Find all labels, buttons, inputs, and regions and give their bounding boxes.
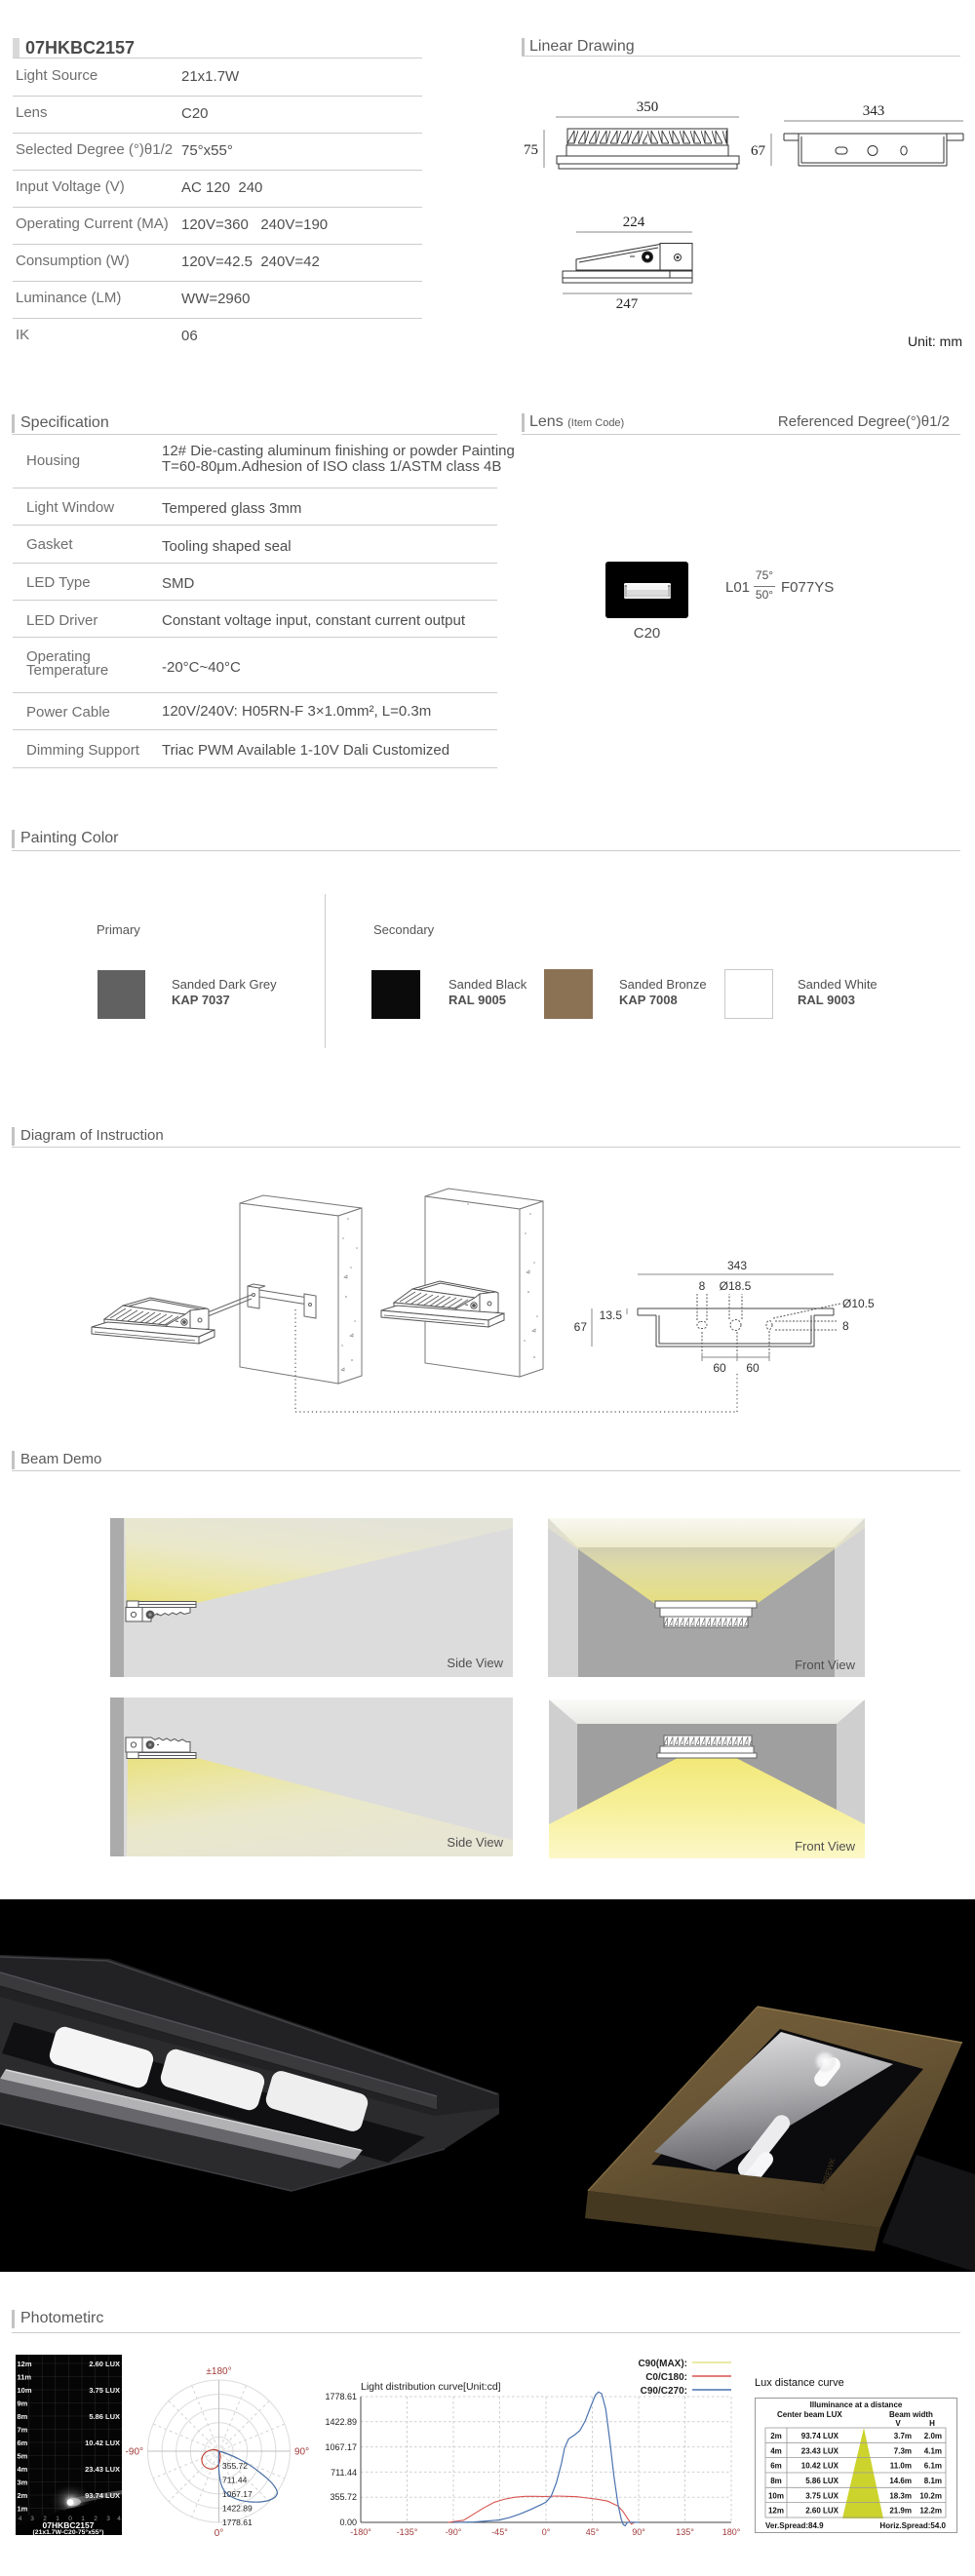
svg-text:C90/C270:: C90/C270: — [641, 2386, 687, 2397]
svg-text:180°: 180° — [722, 2527, 741, 2537]
svg-text:Side View: Side View — [447, 1835, 503, 1850]
svg-text:10.42 LUX: 10.42 LUX — [801, 2462, 839, 2471]
svg-text:Illuminance at a distance: Illuminance at a distance — [810, 2400, 903, 2409]
svg-text:224: 224 — [623, 215, 645, 230]
svg-text:V: V — [895, 2419, 901, 2428]
svg-text:1m: 1m — [18, 2505, 28, 2514]
svg-text:60: 60 — [713, 1361, 726, 1375]
svg-text:1422.89: 1422.89 — [325, 2417, 357, 2427]
svg-text:711.44: 711.44 — [222, 2476, 248, 2485]
svg-text:Ø18.5: Ø18.5 — [720, 1279, 752, 1293]
svg-text:13.5: 13.5 — [600, 1308, 623, 1322]
svg-text:355.72: 355.72 — [330, 2492, 357, 2502]
svg-text:247: 247 — [616, 296, 639, 312]
svg-text:3: 3 — [30, 2516, 34, 2522]
svg-text:10.2m: 10.2m — [919, 2491, 942, 2500]
svg-text:Front View: Front View — [795, 1839, 856, 1854]
svg-text:8: 8 — [699, 1279, 706, 1293]
svg-text:Ø10.5: Ø10.5 — [842, 1297, 875, 1310]
svg-text:11m: 11m — [18, 2373, 32, 2382]
svg-text:75: 75 — [524, 142, 538, 158]
svg-text:2: 2 — [94, 2516, 97, 2522]
svg-text:8: 8 — [842, 1319, 849, 1333]
svg-text:93.74 LUX: 93.74 LUX — [801, 2432, 839, 2440]
svg-text:14.6m: 14.6m — [889, 2477, 912, 2485]
svg-text:135°: 135° — [676, 2527, 694, 2537]
svg-text:4: 4 — [117, 2516, 121, 2522]
svg-text:2.60 LUX: 2.60 LUX — [89, 2360, 120, 2368]
svg-text:5.86 LUX: 5.86 LUX — [805, 2477, 838, 2485]
svg-text:-45°: -45° — [491, 2527, 508, 2537]
svg-text:67: 67 — [574, 1320, 588, 1334]
svg-text:12.2m: 12.2m — [919, 2507, 942, 2516]
svg-text:350: 350 — [637, 99, 659, 115]
svg-text:343: 343 — [727, 1259, 747, 1272]
svg-text:90°: 90° — [294, 2447, 309, 2458]
svg-text:1067.17: 1067.17 — [325, 2442, 357, 2452]
svg-text:12m: 12m — [768, 2507, 784, 2516]
svg-text:45°: 45° — [586, 2527, 600, 2537]
svg-text:11.0m: 11.0m — [890, 2462, 912, 2471]
svg-text:2m: 2m — [770, 2432, 782, 2440]
svg-text:12m: 12m — [18, 2360, 32, 2368]
svg-text:0.00: 0.00 — [339, 2517, 357, 2527]
svg-text:C0/C180:: C0/C180: — [645, 2372, 687, 2383]
svg-text:10.42 LUX: 10.42 LUX — [85, 2439, 120, 2447]
svg-text:21.9m: 21.9m — [889, 2507, 912, 2516]
svg-text:3.75 LUX: 3.75 LUX — [89, 2386, 120, 2395]
svg-text:Horiz.Spread:54.0: Horiz.Spread:54.0 — [879, 2521, 946, 2530]
svg-text:10m: 10m — [18, 2386, 32, 2395]
svg-text:H: H — [929, 2419, 935, 2428]
svg-text:-90°: -90° — [126, 2447, 143, 2458]
svg-text:4.1m: 4.1m — [924, 2446, 942, 2455]
svg-text:343: 343 — [863, 103, 885, 119]
svg-text:90°: 90° — [632, 2527, 645, 2537]
svg-text:6m: 6m — [18, 2439, 28, 2447]
svg-text:1778.61: 1778.61 — [325, 2392, 357, 2401]
svg-text:2.60 LUX: 2.60 LUX — [805, 2507, 838, 2516]
svg-text:Center beam LUX: Center beam LUX — [777, 2410, 842, 2419]
svg-text:6.1m: 6.1m — [924, 2462, 942, 2471]
svg-text:C90(MAX):: C90(MAX): — [638, 2359, 687, 2369]
svg-text:67: 67 — [751, 143, 766, 159]
svg-text:8m: 8m — [18, 2412, 28, 2421]
svg-text:8m: 8m — [770, 2477, 782, 2485]
svg-text:2.0m: 2.0m — [924, 2432, 942, 2440]
svg-text:Unit: mm: Unit: mm — [908, 333, 962, 349]
svg-text:23.43 LUX: 23.43 LUX — [801, 2446, 839, 2455]
svg-text:0°: 0° — [542, 2527, 551, 2537]
svg-text:10m: 10m — [768, 2491, 784, 2500]
svg-text:Side View: Side View — [447, 1656, 503, 1670]
svg-text:4m: 4m — [18, 2465, 28, 2474]
svg-text:93.74 LUX: 93.74 LUX — [85, 2491, 120, 2500]
svg-text:711.44: 711.44 — [331, 2468, 357, 2478]
svg-text:3m: 3m — [18, 2478, 28, 2487]
svg-text:4m: 4m — [770, 2446, 782, 2455]
svg-text:Light distribution curve[Unit:: Light distribution curve[Unit:cd] — [361, 2381, 501, 2393]
svg-text:-135°: -135° — [397, 2527, 418, 2537]
svg-text:60: 60 — [746, 1361, 760, 1375]
svg-text:3.75 LUX: 3.75 LUX — [805, 2491, 838, 2500]
svg-text:Front View: Front View — [795, 1658, 856, 1672]
svg-text:6m: 6m — [770, 2462, 782, 2471]
svg-text:3: 3 — [106, 2516, 110, 2522]
svg-text:4: 4 — [19, 2516, 22, 2522]
svg-text:18.3m: 18.3m — [889, 2491, 912, 2500]
svg-text:7m: 7m — [18, 2426, 28, 2435]
svg-text:7.3m: 7.3m — [894, 2446, 912, 2455]
svg-text:±180°: ±180° — [206, 2366, 231, 2377]
svg-text:23.43 LUX: 23.43 LUX — [85, 2465, 120, 2474]
svg-text:-180°: -180° — [350, 2527, 371, 2537]
svg-text:5m: 5m — [18, 2452, 28, 2461]
svg-text:5.86 LUX: 5.86 LUX — [89, 2412, 120, 2421]
svg-text:9m: 9m — [18, 2400, 28, 2408]
svg-text:0°: 0° — [214, 2528, 224, 2539]
svg-text:(21x1.7W-C20-75°x55°): (21x1.7W-C20-75°x55°) — [33, 2528, 104, 2535]
svg-text:3.7m: 3.7m — [894, 2432, 912, 2440]
svg-text:1778.61: 1778.61 — [222, 2517, 253, 2527]
svg-text:-90°: -90° — [446, 2527, 462, 2537]
svg-text:1422.89: 1422.89 — [222, 2504, 253, 2514]
svg-text:Ver.Spread:84.9: Ver.Spread:84.9 — [765, 2521, 824, 2530]
svg-text:8.1m: 8.1m — [924, 2477, 942, 2485]
svg-text:Beam width: Beam width — [889, 2410, 933, 2419]
svg-text:2m: 2m — [18, 2491, 28, 2500]
